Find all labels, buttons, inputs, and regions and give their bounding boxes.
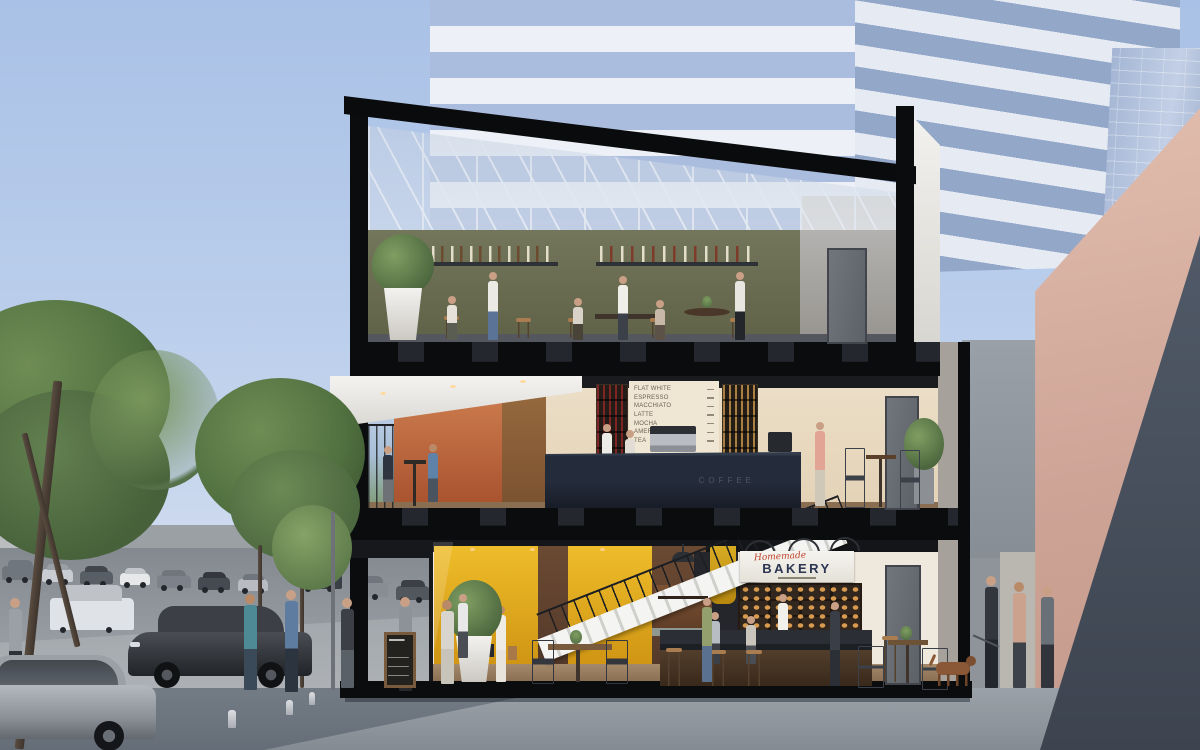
storefront-soffit [350,540,432,558]
canopy-light [380,392,386,395]
cafe-table [548,644,612,650]
bottle-shelf [428,262,558,266]
counter-stool [746,650,762,686]
dog-legs [938,674,970,686]
suv-wheel [94,721,124,750]
table-flowers [900,626,912,640]
person [571,298,585,340]
menu-item: ESPRESSO [634,394,714,403]
canopy-light [450,385,456,388]
slab-level3 [350,342,940,376]
chalkboard-sign [384,632,416,688]
wire-chair [858,646,884,688]
tree-canopy [272,505,352,590]
menu-item: LATTE [634,411,714,420]
counter-stool [666,648,682,686]
car [157,575,191,588]
bakery-sign: Homemade BAKERY [740,551,854,582]
bakery-sign-tagline [778,577,816,579]
car [198,577,230,590]
canopy-light [520,380,526,383]
rooftop-door [827,248,867,344]
terrace-table-leg [413,464,416,506]
suv-headlight [130,642,140,647]
ceiling-spot [470,548,475,551]
cafe-chair [532,640,554,684]
person [282,590,300,690]
pendant-cord [682,544,684,552]
table-flowers [702,296,712,308]
ceiling-spot [530,548,535,551]
person [700,598,714,682]
person [241,594,259,688]
bakery-sign-main: BAKERY [740,561,854,576]
person [456,594,470,658]
person [381,446,395,502]
person-baker [776,594,790,632]
dog [936,652,976,688]
menu-item: MACCHIATO [634,402,714,411]
bottle-shelf [596,262,758,266]
suv-body [0,685,156,739]
slab-level2 [350,508,962,540]
section-right-column-bottom [958,342,970,682]
cash-register [768,432,792,452]
person [982,576,1000,686]
person-waiter [733,272,747,340]
car [238,579,268,591]
person [438,600,456,682]
side-table-leg [906,645,909,683]
ceiling-spot [600,548,605,551]
right-white-wall [914,118,940,344]
bottles [600,246,754,262]
wire-chair [900,450,920,510]
suv-windows [0,660,118,686]
dog-head [966,656,976,666]
rooftop-planter [384,288,422,340]
cafe-table-leg [576,650,580,682]
suv-wheel [154,662,180,688]
coffee-counter-label: COFFEE [699,476,755,485]
bollard [309,692,315,705]
person [445,296,459,340]
wire-chair [845,448,865,508]
espresso-machine [650,426,696,452]
shopping-bag [508,646,517,660]
wine-shelf [722,384,758,460]
coffee-counter: COFFEE [545,452,801,508]
person [828,602,842,686]
section-right-column-top [896,106,914,346]
street-pole [331,512,335,690]
person [486,272,500,340]
person [616,276,630,340]
person [426,444,440,502]
suv-windows [164,610,276,632]
table-plant [570,630,582,644]
rooftop-plant [372,234,434,296]
cafe-chair [606,640,628,684]
car [80,571,113,584]
car [120,573,150,585]
person [653,300,667,340]
menu-item: FLAT WHITE [634,385,714,394]
foreground-suv [0,655,156,750]
bar-stool [516,318,531,338]
bottles [432,246,554,262]
bollard [286,700,293,715]
suv-wheel [258,662,284,688]
person [1010,582,1028,686]
high-table-leg [879,459,882,507]
person [813,422,827,506]
street-scene: FLAT WHITE ESPRESSO MACCHIATO LATTE MOCH… [0,0,1200,750]
person [338,598,356,686]
round-table [684,308,730,316]
bollard [228,710,236,728]
person [1038,586,1056,686]
